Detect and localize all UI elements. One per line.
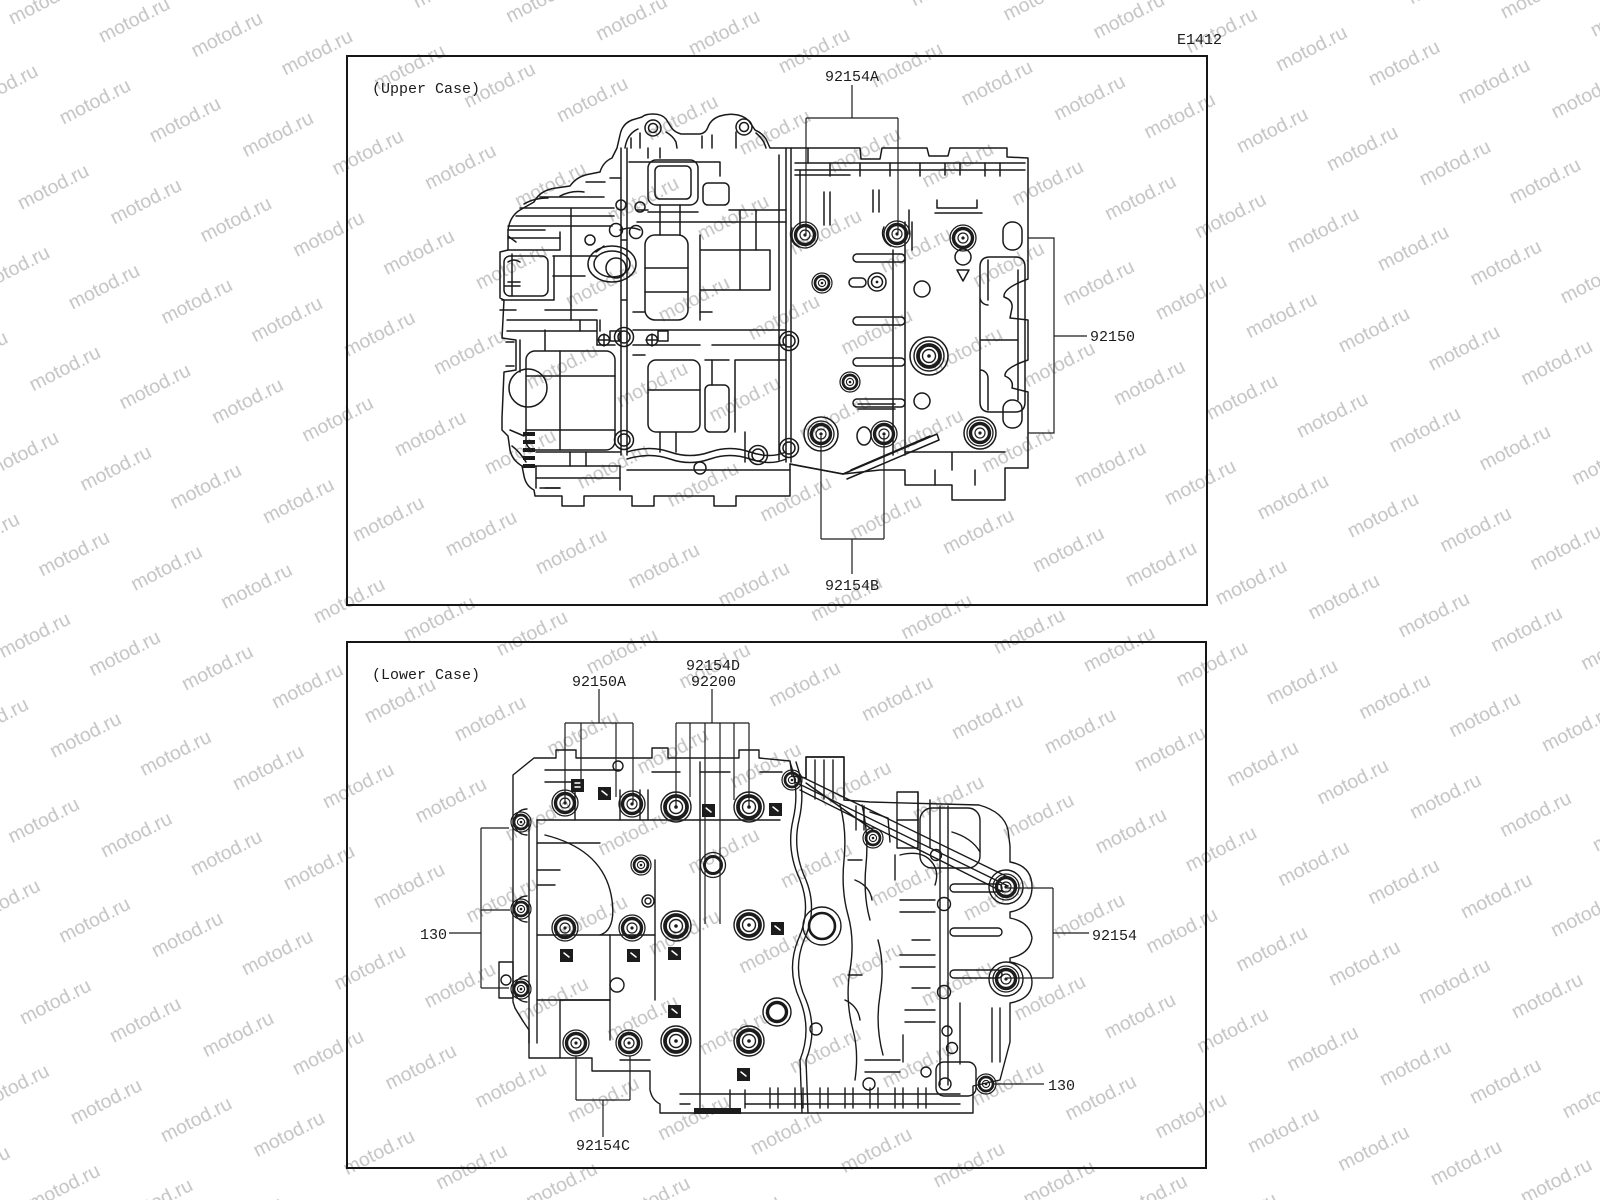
svg-text:130: 130 (1048, 1078, 1075, 1095)
svg-text:92154B: 92154B (825, 578, 879, 595)
svg-text:92200: 92200 (691, 674, 736, 691)
svg-text:92154A: 92154A (825, 69, 879, 86)
svg-text:E1412: E1412 (1177, 32, 1222, 49)
svg-text:(Lower Case): (Lower Case) (372, 667, 480, 684)
svg-text:92154C: 92154C (576, 1138, 630, 1155)
svg-text:92150: 92150 (1090, 329, 1135, 346)
svg-text:130: 130 (420, 927, 447, 944)
svg-text:92154D: 92154D (686, 658, 740, 675)
svg-text:(Upper Case): (Upper Case) (372, 81, 480, 98)
svg-text:92150A: 92150A (572, 674, 626, 691)
svg-text:92154: 92154 (1092, 928, 1137, 945)
